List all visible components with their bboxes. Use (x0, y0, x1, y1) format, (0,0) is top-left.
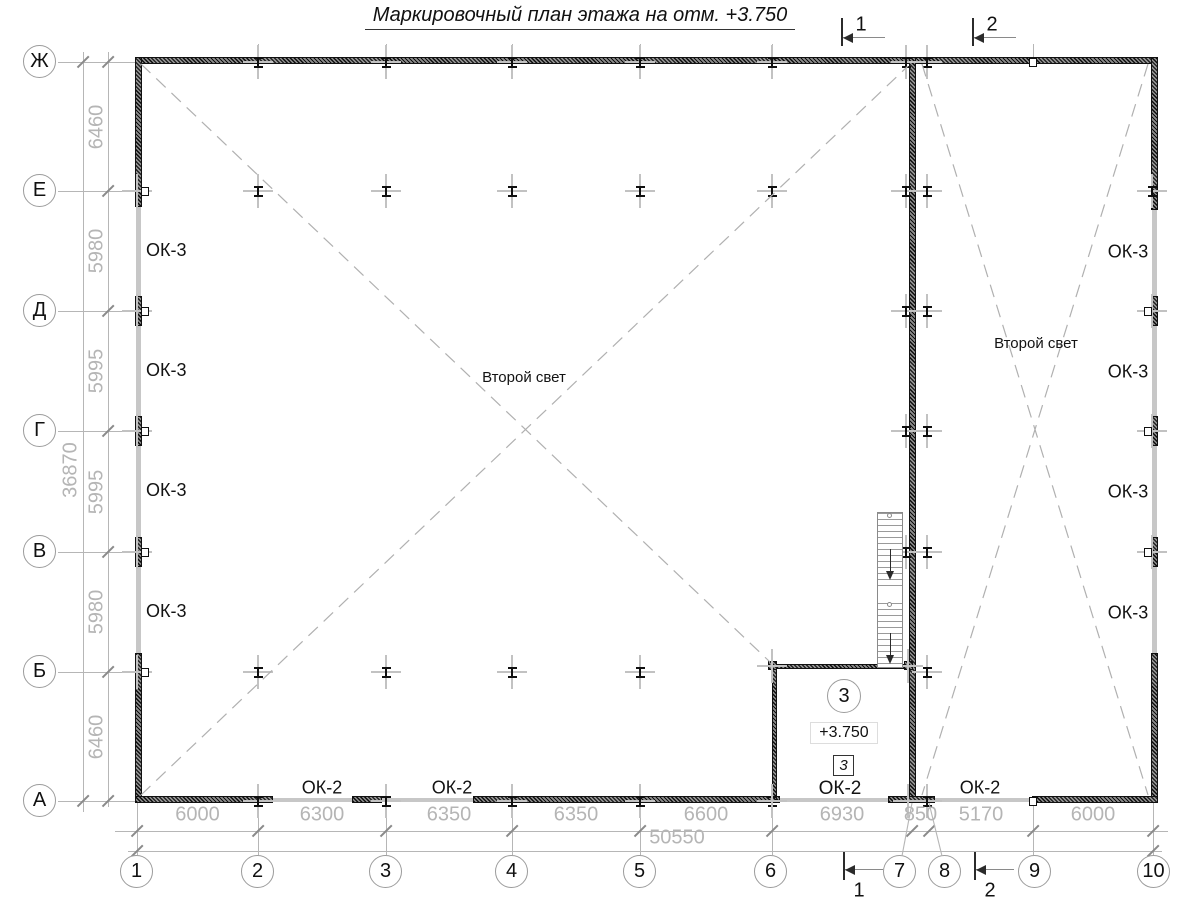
column-ibeam-symbol (902, 186, 911, 197)
dim-label-bottom: 6350 (427, 804, 472, 827)
axis-bubble-col-7: 7 (883, 855, 916, 888)
column-ibeam-symbol (768, 57, 777, 68)
axis-bubble-col-6: 6 (754, 855, 787, 888)
dim-label-bottom: 6300 (300, 804, 345, 827)
axis-bubble-row-Г: Г (23, 414, 56, 447)
window-label-right: ОК-3 (1108, 482, 1149, 503)
section-label: 2 (986, 14, 997, 37)
wall-column-square (1029, 58, 1037, 67)
top-extension-stub (1033, 44, 1034, 57)
window-label-left: ОК-3 (146, 240, 187, 261)
window-label-right: ОК-3 (1108, 603, 1149, 624)
column-ibeam-symbol (923, 57, 932, 68)
column-ibeam-symbol (923, 306, 932, 317)
dim-label-left: 5995 (86, 349, 109, 394)
bottom-total-dim-line (128, 851, 1162, 852)
wall-column-square (141, 548, 149, 557)
wall-column-square (1144, 548, 1152, 557)
double-height-diagonal-lines (141, 64, 1148, 795)
column-crosshair (136, 535, 137, 569)
row-axis-leader-line (58, 801, 135, 802)
column-ibeam-symbol (382, 667, 391, 678)
column-ibeam-symbol (254, 796, 263, 807)
column-ibeam-symbol (508, 57, 517, 68)
column-ibeam-symbol (902, 306, 911, 317)
wall-column-square (141, 668, 149, 677)
wall-column-square (1029, 797, 1037, 806)
stair-newel-post (887, 602, 892, 607)
axis-bubble-col-3: 3 (369, 855, 402, 888)
dim-label-bottom: 5170 (959, 804, 1004, 827)
left-total-dim-line (83, 52, 84, 812)
dim-label-bottom: 6000 (175, 804, 220, 827)
column-ibeam-symbol (636, 796, 645, 807)
axis-bubble-col-4: 4 (495, 855, 528, 888)
second-light-label-right: Второй свет (990, 336, 1082, 352)
window-label-bottom: ОК-2 (302, 778, 343, 799)
column-crosshair (771, 784, 772, 818)
stair-arrow-head (886, 571, 894, 580)
column-ibeam-symbol (382, 186, 391, 197)
dim-label-bottom: 6350 (554, 804, 599, 827)
window-label-bottom: ОК-2 (432, 778, 473, 799)
window-label-right: ОК-3 (1108, 362, 1149, 383)
solid-wall (1032, 796, 1158, 803)
axis-bubble-row-Д: Д (23, 294, 56, 327)
dim-label-left: 5980 (86, 229, 109, 274)
column-crosshair (771, 649, 772, 683)
stair-newel-post (887, 513, 892, 518)
column-crosshair (136, 174, 137, 208)
drawing-title: Маркировочный план этажа на отм. +3.750 (300, 4, 860, 30)
axis-bubble-col-9: 9 (1018, 855, 1051, 888)
column-ibeam-symbol (636, 57, 645, 68)
dim-label-left-total: 36870 (60, 442, 83, 498)
window-label-bottom: ОК-2 (960, 778, 1001, 799)
axis-bubble-col-10: 10 (1137, 855, 1170, 888)
drawing-title-text: Маркировочный план этажа на отм. +3.750 (365, 4, 796, 30)
bottom-dim-line (115, 831, 1168, 832)
stair-arrow-head (886, 655, 894, 664)
wall-column-square (141, 427, 149, 436)
axis-bubble-row-Б: Б (23, 655, 56, 688)
axis-bubble-row-А: А (23, 784, 56, 817)
wall-column-square (141, 187, 149, 196)
axis-bubble-row-Е: Е (23, 174, 56, 207)
dim-label-left: 6460 (86, 714, 109, 759)
stair-direction-arrow (890, 633, 892, 657)
column-crosshair (136, 414, 137, 448)
solid-wall (772, 664, 777, 803)
column-ibeam-symbol (768, 186, 777, 197)
wall-column-square (1144, 307, 1152, 316)
second-light-label-main: Второй свет (478, 370, 570, 386)
wall-column-square (141, 307, 149, 316)
section-arrow (974, 33, 984, 43)
solid-wall (1151, 653, 1158, 803)
window-label-left: ОК-3 (146, 601, 187, 622)
axis-bubble-col-8: 8 (928, 855, 961, 888)
section-label: 1 (853, 880, 864, 900)
room-number: 3 (838, 685, 849, 708)
dim-label-left: 6460 (86, 104, 109, 149)
section-label: 1 (855, 14, 866, 37)
column-crosshair (136, 294, 137, 328)
stair-direction-arrow (890, 549, 892, 573)
room-window-label: ОК-2 (819, 778, 862, 800)
axis-bubble-col-2: 2 (241, 855, 274, 888)
column-ibeam-symbol (923, 667, 932, 678)
room-mark-box: 3 (833, 755, 854, 776)
room-number-bubble: 3 (827, 679, 861, 713)
section-arrow (845, 865, 855, 875)
axis-bubble-col-1: 1 (120, 855, 153, 888)
column-ibeam-symbol (508, 186, 517, 197)
room-mark: 3 (839, 757, 847, 774)
window-label-left: ОК-3 (146, 360, 187, 381)
window-label-right: ОК-3 (1108, 242, 1149, 263)
diagonals-overlay (0, 0, 1200, 900)
axis-bubble-row-Ж: Ж (23, 45, 56, 78)
column-ibeam-symbol (254, 57, 263, 68)
axis-bubble-row-В: В (23, 535, 56, 568)
section-label: 2 (984, 880, 995, 900)
column-ibeam-symbol (636, 186, 645, 197)
column-ibeam-symbol (382, 796, 391, 807)
dim-label-bottom-total: 50550 (649, 827, 705, 850)
section-arrow (843, 33, 853, 43)
dim-label-bottom: 6600 (684, 804, 729, 827)
column-ibeam-symbol (382, 57, 391, 68)
column-ibeam-symbol (508, 796, 517, 807)
column-ibeam-symbol (1148, 186, 1157, 197)
axis-bubble-col-5: 5 (623, 855, 656, 888)
room-level: +3.750 (819, 724, 868, 742)
column-ibeam-symbol (902, 426, 911, 437)
row-axis-leader-line (58, 62, 135, 63)
window-label-left: ОК-3 (146, 480, 187, 501)
section-arrow (976, 865, 986, 875)
column-ibeam-symbol (508, 667, 517, 678)
column-crosshair (907, 649, 908, 683)
staircase (877, 512, 903, 668)
column-ibeam-symbol (923, 547, 932, 558)
dim-label-left: 5980 (86, 590, 109, 635)
column-ibeam-symbol (254, 667, 263, 678)
room-level-box: +3.750 (810, 722, 878, 744)
column-crosshair (136, 655, 137, 689)
dim-label-bottom: 6930 (820, 804, 865, 827)
dim-label-left: 5995 (86, 469, 109, 514)
wall-column-square (1144, 427, 1152, 436)
floor-plan-canvas: Маркировочный план этажа на отм. +3.750 … (0, 0, 1200, 900)
column-ibeam-symbol (254, 186, 263, 197)
column-ibeam-symbol (902, 57, 911, 68)
column-ibeam-symbol (923, 186, 932, 197)
column-ibeam-symbol (923, 426, 932, 437)
column-ibeam-symbol (636, 667, 645, 678)
dim-label-bottom: 850 (904, 804, 937, 827)
dim-label-bottom: 6000 (1071, 804, 1116, 827)
